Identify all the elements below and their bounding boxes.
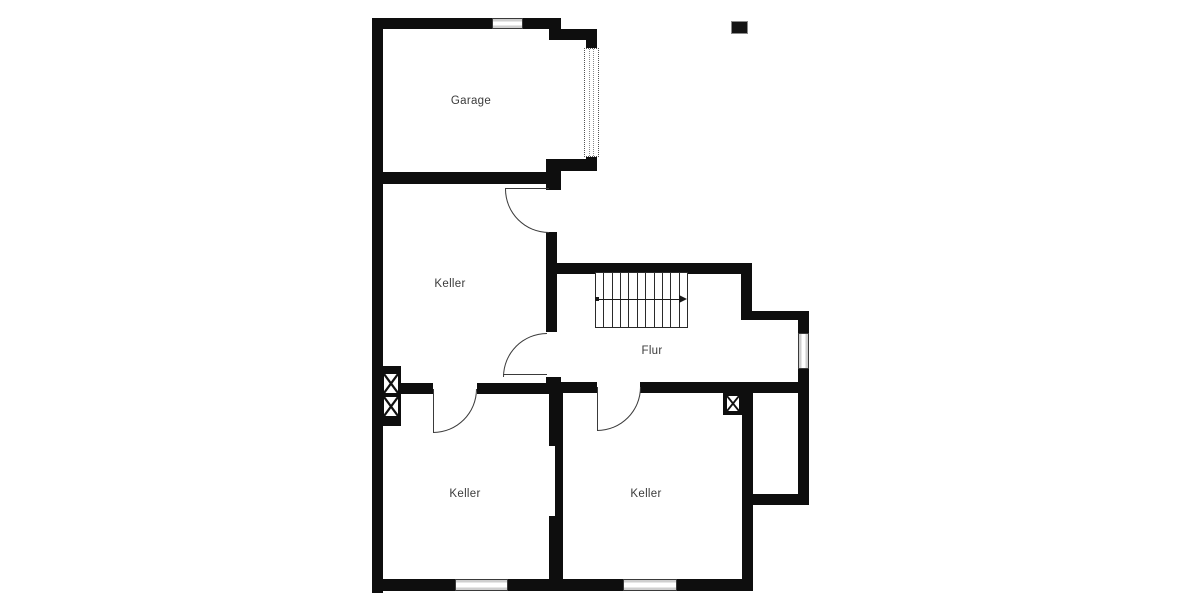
door-arc-keller-br bbox=[597, 387, 641, 431]
room-label-keller-mitte: Keller bbox=[434, 278, 465, 290]
door-arc-keller-bl bbox=[433, 389, 477, 433]
wall-garage-top bbox=[372, 18, 561, 29]
door-leaf bbox=[505, 188, 549, 189]
wall-flur-bottom-right bbox=[640, 382, 803, 393]
wall-flur-right-upper bbox=[741, 263, 752, 318]
room-label-keller-links: Keller bbox=[449, 488, 480, 500]
door-leaf bbox=[597, 387, 598, 431]
door-arc-keller-entry bbox=[505, 189, 549, 233]
wall-flur-bottom-left bbox=[546, 382, 597, 393]
stair-tread bbox=[638, 273, 646, 327]
chimney-icon bbox=[384, 397, 398, 416]
stair-tread bbox=[604, 273, 612, 327]
stair-arrow-icon bbox=[679, 295, 687, 303]
room-label-garage: Garage bbox=[451, 95, 491, 107]
window-garage-top bbox=[492, 18, 523, 29]
wall-keller-right-exterior bbox=[742, 382, 753, 590]
window-keller-right bbox=[623, 579, 677, 591]
wall-bottom-exterior bbox=[372, 579, 753, 591]
window-keller-left bbox=[455, 579, 508, 591]
wall-keller-bl-top-b bbox=[477, 383, 549, 394]
wall-garage-keller-divider bbox=[372, 172, 561, 184]
floor-plan: Garage Keller Flur Keller Keller bbox=[0, 0, 1200, 600]
stair-tread bbox=[629, 273, 637, 327]
stair-tread bbox=[655, 273, 663, 327]
stair-tread bbox=[613, 273, 621, 327]
wall-keller-east-upper bbox=[546, 232, 557, 263]
garage-door-symbol bbox=[584, 48, 599, 157]
door-leaf bbox=[503, 374, 547, 375]
wall-garage-top-jog-horizontal bbox=[549, 29, 597, 40]
legend-square-marker bbox=[731, 21, 748, 34]
wall-east-above-window bbox=[798, 318, 809, 333]
wall-niche bbox=[549, 446, 555, 516]
room-label-keller-rechts: Keller bbox=[630, 488, 661, 500]
stair-walkline-start-dot bbox=[595, 297, 599, 301]
chimney-icon bbox=[384, 374, 398, 393]
door-arc-keller-flur bbox=[503, 333, 547, 377]
wall-keller-bl-top-a bbox=[401, 383, 433, 394]
wall-entry-corner-block bbox=[546, 159, 561, 190]
window-flur-east bbox=[798, 333, 809, 369]
wall-keller-east-mid bbox=[546, 274, 557, 332]
stair-tread bbox=[663, 273, 671, 327]
stair-walkline bbox=[597, 299, 681, 300]
stair-tread bbox=[646, 273, 654, 327]
room-label-flur: Flur bbox=[641, 345, 662, 357]
stair-tread bbox=[621, 273, 629, 327]
stairs-symbol bbox=[595, 272, 688, 328]
chimney-icon bbox=[727, 396, 739, 411]
door-leaf bbox=[433, 389, 434, 433]
wall-left-exterior bbox=[372, 18, 383, 593]
